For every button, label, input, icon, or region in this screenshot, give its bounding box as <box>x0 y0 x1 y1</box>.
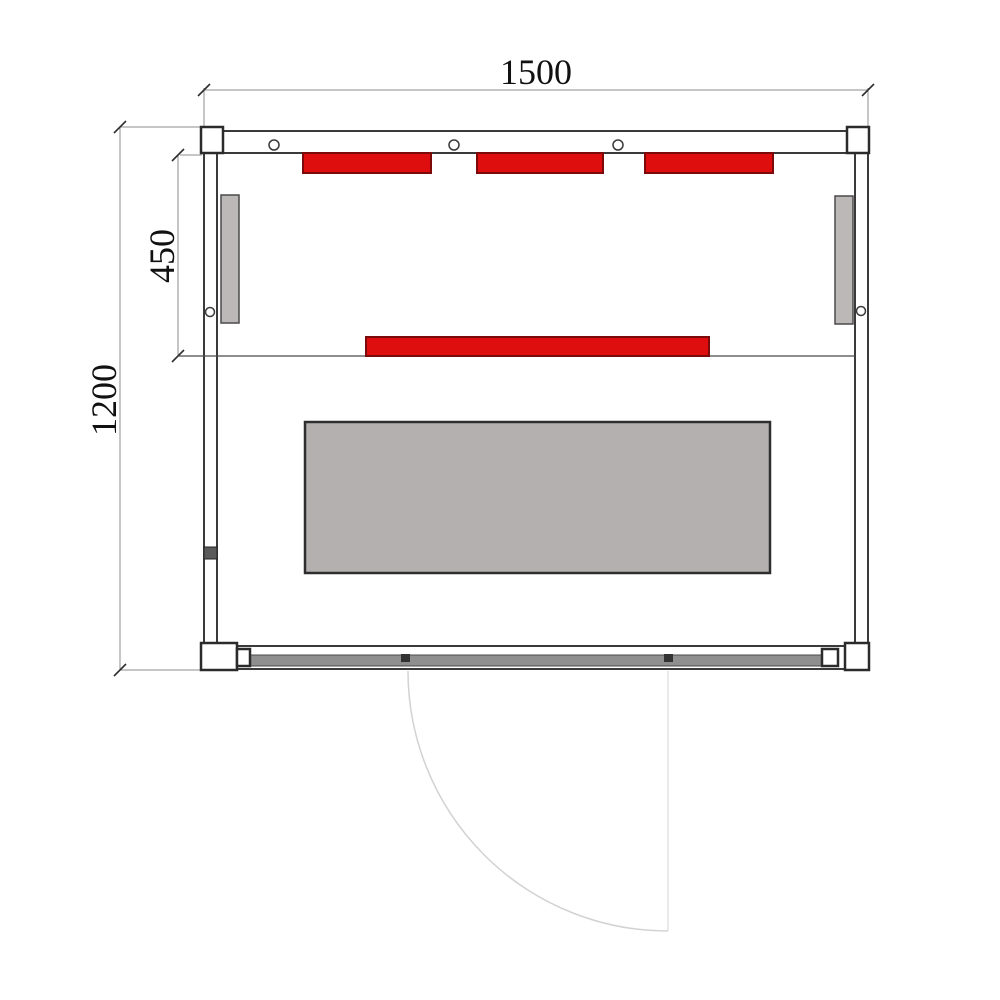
screw-hole-icon <box>857 307 866 316</box>
right-wall <box>855 131 868 670</box>
bench <box>305 422 770 573</box>
floor-plan-canvas: 1500 1200 450 <box>0 0 1000 1000</box>
screw-hole-icon <box>613 140 623 150</box>
door-swing-arc <box>408 671 668 931</box>
corner-post-bottom-right <box>845 643 869 670</box>
dim-heater-zone-label: 450 <box>142 229 182 283</box>
bench-front-heater-panel <box>366 337 709 356</box>
right-side-heater-panel <box>835 196 853 324</box>
back-heater-panel-2 <box>477 153 603 173</box>
dimension-depth: 1200 <box>84 121 202 676</box>
door-jamb-left <box>401 654 410 662</box>
glass-band-end-cap-left <box>237 649 250 666</box>
top-wall <box>204 131 868 153</box>
screw-hole-icon <box>206 308 215 317</box>
back-heater-panel-1 <box>303 153 431 173</box>
dimension-heater-zone: 450 <box>142 149 202 362</box>
floor-plan-svg: 1500 1200 450 <box>0 0 1000 1000</box>
left-side-heater-panel <box>221 195 239 323</box>
screw-hole-icon <box>449 140 459 150</box>
dim-depth-label: 1200 <box>84 364 124 436</box>
left-wall <box>204 131 217 670</box>
glass-band-end-cap-right <box>822 649 838 666</box>
left-wall-hinge-fitting <box>204 547 217 559</box>
corner-post-bottom-left <box>201 643 237 670</box>
screw-hole-icon <box>269 140 279 150</box>
dimension-width: 1500 <box>198 52 874 130</box>
corner-post-top-left <box>201 127 223 153</box>
dim-width-label: 1500 <box>500 52 572 92</box>
front-glass-band <box>250 655 826 666</box>
back-heater-panel-3 <box>645 153 773 173</box>
door-jamb-right <box>664 654 673 662</box>
corner-post-top-right <box>847 127 869 153</box>
